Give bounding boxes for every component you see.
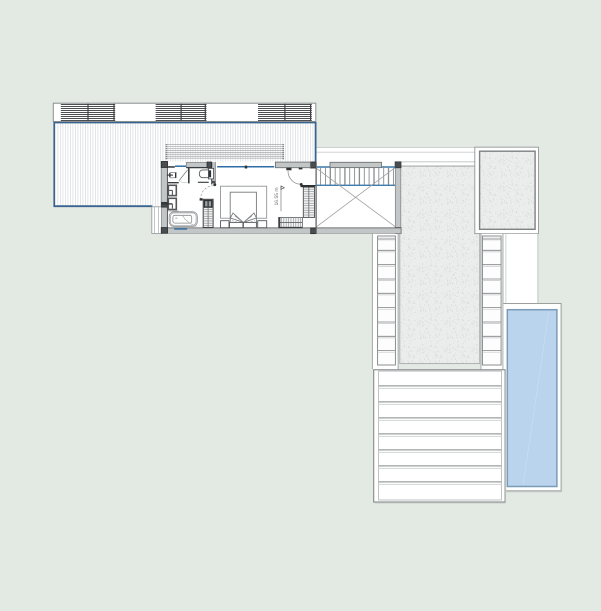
svg-text:16.55 m: 16.55 m (274, 187, 280, 205)
